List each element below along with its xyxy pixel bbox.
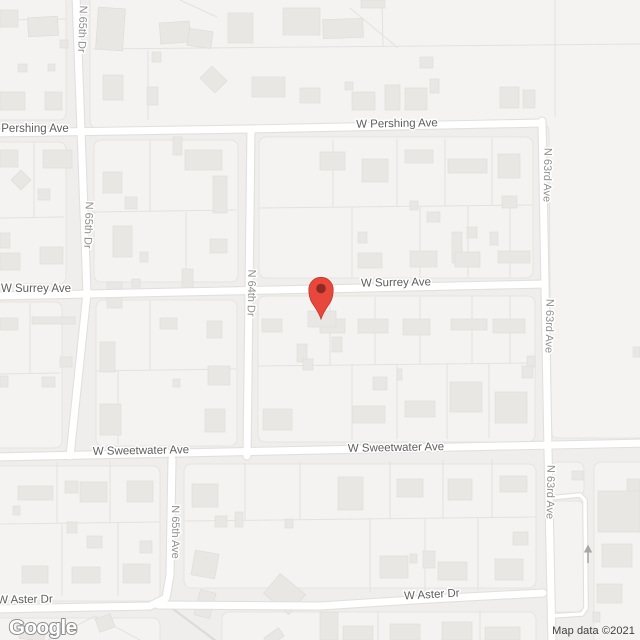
building-footprint [252, 77, 285, 97]
building-footprint [358, 253, 382, 268]
building-footprint [18, 64, 27, 72]
building-footprint [498, 251, 530, 263]
street-label: W Pershing Ave [356, 117, 438, 130]
building-footprint [633, 347, 640, 357]
building-footprint [228, 13, 253, 43]
building-footprint [132, 279, 140, 287]
map-canvas[interactable]: N 65th DrN 65th DrN 64th DrN 63rd AveN 6… [0, 0, 640, 640]
building-footprint [320, 612, 338, 640]
building-footprint [42, 377, 55, 387]
building-footprint [96, 7, 126, 51]
building-footprint [43, 150, 72, 168]
building-footprint [361, 0, 385, 8]
building-footprint [127, 481, 153, 502]
street-label: W Surrey Ave [1, 283, 71, 295]
street-label: W Sweetwater Ave [348, 441, 445, 455]
building-footprint [103, 172, 122, 193]
building-footprint [187, 28, 213, 48]
building-footprint [498, 154, 520, 178]
map-attribution: Map data ©2021 [552, 625, 635, 637]
building-footprint [87, 536, 102, 548]
building-footprint [113, 226, 132, 257]
building-footprint [208, 366, 230, 385]
building-footprint [450, 382, 482, 412]
building-footprint [405, 401, 435, 417]
building-footprint [467, 227, 477, 238]
building-footprint [490, 232, 498, 245]
building-footprint [352, 92, 375, 110]
building-footprint [173, 137, 182, 155]
building-footprint [159, 21, 190, 44]
building-footprint [500, 476, 527, 492]
building-footprint [182, 269, 193, 290]
building-footprint [410, 554, 417, 563]
building-footprint [100, 342, 115, 372]
building-footprint [430, 79, 439, 93]
building-footprint [123, 564, 150, 583]
building-footprint [100, 404, 121, 435]
building-footprint [403, 319, 430, 335]
building-footprint [448, 479, 472, 500]
building-footprint [397, 369, 402, 380]
building-footprint [0, 318, 18, 330]
building-footprint [320, 152, 345, 170]
building-footprint [493, 319, 525, 333]
building-footprint [0, 10, 18, 27]
building-footprint [28, 16, 59, 37]
building-footprint [323, 18, 364, 38]
street-label: N 65th Dr [75, 5, 89, 53]
building-footprint [213, 176, 227, 213]
building-footprint [332, 337, 342, 352]
building-footprint [598, 491, 640, 532]
building-footprint [0, 92, 25, 110]
building-footprint [485, 627, 520, 640]
building-footprint [345, 82, 353, 90]
building-footprint [500, 87, 519, 108]
building-footprint [522, 366, 533, 378]
building-footprint [140, 541, 152, 553]
street-label: N 63rd Ave [544, 465, 557, 519]
building-footprint [502, 196, 517, 208]
building-footprint [390, 624, 420, 640]
building-footprint [173, 379, 180, 387]
building-footprint [572, 471, 583, 480]
building-footprint [18, 486, 53, 500]
building-footprint [602, 544, 632, 567]
building-footprint [380, 556, 408, 578]
building-footprint [283, 8, 320, 35]
building-footprint [32, 317, 75, 324]
building-footprint [40, 247, 63, 264]
google-logo[interactable]: Google [9, 616, 77, 639]
street-label: N 63rd Ave [541, 148, 554, 202]
building-footprint [205, 409, 225, 432]
building-footprint [0, 233, 10, 248]
building-footprint [438, 562, 467, 580]
building-footprint [420, 57, 433, 68]
building-footprint [373, 377, 387, 390]
building-footprint [358, 232, 367, 243]
building-footprint [210, 239, 227, 253]
building-footprint [423, 551, 435, 568]
street-label: W Sweetwater Ave [93, 444, 190, 458]
building-footprint [215, 516, 227, 527]
building-footprint [207, 321, 222, 338]
building-footprint [593, 612, 600, 622]
building-footprint [22, 566, 48, 583]
building-footprint [495, 392, 527, 423]
street-label: N 64th Dr [245, 269, 258, 317]
building-footprint [60, 357, 72, 367]
building-footprint [513, 532, 528, 545]
street-label: W Pershing Ave [0, 123, 69, 135]
street-label: N 65th Ave [169, 505, 181, 559]
building-footprint [362, 159, 388, 182]
building-footprint [67, 522, 77, 533]
building-footprint [0, 150, 18, 167]
building-footprint [72, 567, 100, 583]
map-container: N 65th DrN 65th DrN 64th DrN 63rd AveN 6… [0, 0, 640, 640]
building-footprint [125, 197, 137, 209]
building-footprint [410, 251, 437, 267]
street-label: N 65th Dr [81, 201, 95, 249]
building-footprint [0, 253, 20, 270]
street-label: W Surrey Ave [361, 276, 431, 289]
building-footprint [263, 409, 292, 430]
building-footprint [451, 319, 487, 330]
building-footprint [427, 212, 440, 222]
building-footprint [523, 90, 535, 108]
building-footprint [300, 88, 320, 103]
building-footprint [60, 40, 68, 48]
building-footprint [358, 319, 388, 333]
building-footprint [303, 359, 313, 370]
building-footprint [442, 622, 472, 640]
building-footprint [285, 519, 293, 528]
building-footprint [147, 87, 158, 105]
building-footprint [65, 481, 78, 493]
building-footprint [192, 484, 218, 507]
building-footprint [455, 252, 480, 267]
marker-dot [316, 284, 326, 294]
building-footprint [152, 52, 161, 62]
building-footprint [191, 550, 219, 579]
building-footprint [185, 150, 222, 170]
building-footprint [140, 252, 148, 262]
building-footprint [38, 189, 50, 200]
street-label: N 63rd Ave [543, 299, 556, 353]
building-footprint [103, 75, 123, 100]
building-footprint [405, 150, 433, 163]
building-footprint [160, 318, 177, 329]
building-footprint [235, 512, 243, 527]
building-footprint [397, 479, 423, 497]
building-footprint [13, 506, 20, 515]
building-footprint [48, 64, 55, 71]
building-footprint [405, 88, 427, 110]
building-footprint [338, 477, 363, 510]
building-footprint [410, 201, 418, 210]
street-label: W Aster Dr [0, 594, 53, 607]
building-footprint [385, 85, 400, 110]
building-footprint [495, 559, 523, 580]
building-footprint [262, 319, 282, 332]
building-footprint [45, 92, 62, 110]
building-footprint [353, 406, 385, 423]
building-footprint [343, 626, 373, 640]
building-footprint [80, 482, 107, 502]
building-footprint [0, 376, 8, 387]
building-footprint [527, 356, 535, 367]
building-footprint [448, 159, 487, 173]
building-footprint [597, 584, 622, 603]
